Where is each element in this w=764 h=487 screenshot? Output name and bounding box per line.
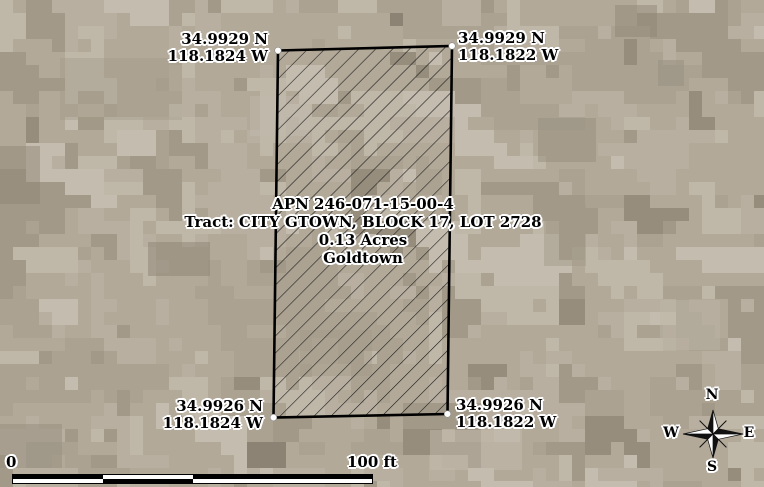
compass-label-north: N	[704, 388, 720, 403]
corner-longitude: 118.1824 W	[168, 48, 268, 65]
scale-bar-segment	[103, 479, 193, 483]
scale-bar-segment	[13, 479, 103, 483]
compass-label-east: E	[741, 426, 757, 441]
parcel-info-label: APN 246-071-15-00-4 Tract: CITY GTOWN, B…	[184, 195, 541, 267]
corner-label-bottom-left: 34.9926 N 118.1824 W	[163, 398, 263, 432]
corner-longitude: 118.1822 W	[456, 414, 556, 431]
parcel-corner-marker	[444, 411, 451, 418]
parcel-tract: Tract: CITY GTOWN, BLOCK 17, LOT 2728	[184, 213, 541, 231]
corner-label-top-right: 34.9929 N 118.1822 W	[458, 30, 558, 64]
compass-label-south: S	[704, 460, 720, 475]
parcel-acreage: 0.13 Acres	[184, 231, 541, 249]
corner-latitude: 34.9929 N	[168, 31, 268, 48]
parcel-corner-marker	[275, 47, 282, 54]
parcel-city: Goldtown	[184, 249, 541, 267]
corner-longitude: 118.1822 W	[458, 47, 558, 64]
parcel-corner-marker	[449, 43, 456, 50]
corner-latitude: 34.9929 N	[458, 30, 558, 47]
scale-bar-segment	[193, 479, 373, 483]
scale-start-label: 0	[6, 454, 16, 470]
corner-longitude: 118.1824 W	[163, 415, 263, 432]
scale-end-label: 100 ft	[347, 454, 397, 470]
corner-latitude: 34.9926 N	[163, 398, 263, 415]
scale-bar	[12, 474, 373, 484]
parcel-corner-marker	[270, 414, 277, 421]
map-canvas[interactable]: 34.9929 N 118.1824 W 34.9929 N 118.1822 …	[0, 0, 764, 487]
corner-latitude: 34.9926 N	[456, 397, 556, 414]
corner-label-bottom-right: 34.9926 N 118.1822 W	[456, 397, 556, 431]
corner-label-top-left: 34.9929 N 118.1824 W	[168, 31, 268, 65]
parcel-apn: APN 246-071-15-00-4	[184, 195, 541, 213]
compass-label-west: W	[663, 426, 679, 441]
